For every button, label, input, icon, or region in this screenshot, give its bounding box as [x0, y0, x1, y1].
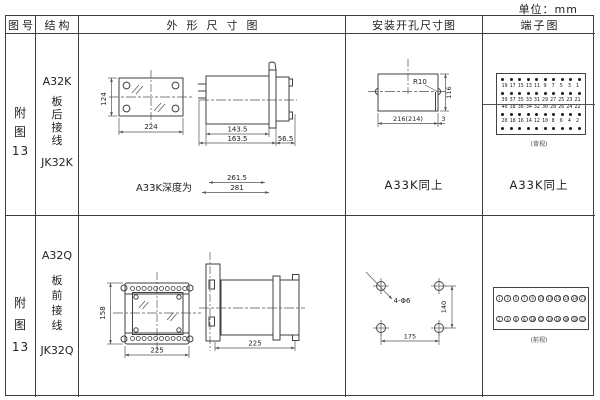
terminal-screw: 22 [579, 316, 586, 323]
row1-figure-cell: 附 图 13 [6, 34, 36, 216]
terminal-number: 13 [525, 84, 532, 89]
terminal-pin-dot [552, 92, 555, 95]
terminal-pin-dot [569, 92, 572, 95]
row2-figure-cell: 附 图 13 [6, 216, 36, 397]
terminal-pin-dot [544, 113, 547, 116]
terminal-screw: 8 [521, 316, 528, 323]
terminal-number: 1 [574, 84, 581, 89]
figure-number: 附 图 13 [6, 292, 35, 358]
dim-front-width: 225 [150, 347, 163, 355]
terminal-number: 2 [574, 119, 581, 124]
terminal-screw: 11 [538, 295, 545, 302]
terminal-pin-dot [527, 127, 530, 130]
terminal-pin-dot [510, 92, 513, 95]
terminal-screw: 18 [563, 316, 570, 323]
terminal-pin-dot [561, 92, 564, 95]
terminal-number: 20 [501, 119, 508, 124]
terminal-screw: 7 [521, 295, 528, 302]
drill-holes [377, 282, 444, 333]
terminal-pin-dot [569, 127, 572, 130]
terminal-pin-dot [510, 127, 513, 130]
terminal-number-row: 39373533312927252321 [497, 98, 585, 103]
terminal-number: 22 [574, 105, 581, 110]
terminal-circle-row: 13579111315171921 [494, 295, 588, 302]
terminal-number-row: 40383634323028262422 [497, 105, 585, 110]
terminal-screw: 12 [538, 316, 545, 323]
outline-drawing-a32q: 158 225 225 [79, 216, 346, 397]
side-center-lines [199, 252, 305, 351]
terminal-number: 37 [509, 98, 516, 103]
view-label: (背视) [483, 139, 595, 148]
terminal-number: 35 [517, 98, 524, 103]
terminal-number-row: 191715131197531 [497, 84, 585, 89]
dim-depth-2: 281 [230, 184, 243, 192]
terminal-screw: 4 [504, 316, 511, 323]
terminal-screw: 3 [504, 295, 511, 302]
terminal-number: 40 [501, 105, 508, 110]
terminal-pin-dot [501, 113, 504, 116]
row1-terminal-cell: 191715131197531 39373533312927252321 403… [483, 34, 595, 216]
terminal-number: 31 [533, 98, 540, 103]
terminal-screw: 13 [546, 295, 553, 302]
terminal-screw: 16 [554, 316, 561, 323]
header-terminal-diagram: 端子图 [483, 16, 595, 34]
terminal-number: 34 [525, 105, 532, 110]
terminal-screw: 2 [496, 316, 503, 323]
dimension-table: 图号 结构 外形尺寸图 安装开孔尺寸图 端子图 附 图 13 A32K 板 后 … [5, 15, 594, 396]
header-outline-dimensions: 外形尺寸图 [79, 16, 346, 34]
terminal-number: 4 [566, 119, 573, 124]
terminal-number: 19 [501, 84, 508, 89]
terminal-number: 21 [574, 98, 581, 103]
dim-hole-label: 4-Φ6 [394, 297, 411, 305]
terminal-number: 6 [558, 119, 565, 124]
terminal-pin-dot [518, 127, 521, 130]
terminal-pin-dot [510, 78, 513, 81]
header-structure: 结构 [36, 16, 79, 34]
terminal-screw: 9 [529, 295, 536, 302]
terminal-pin-dot [578, 113, 581, 116]
terminal-pin-dot [578, 92, 581, 95]
terminal-number: 14 [525, 119, 532, 124]
terminal-pin-dot [518, 78, 521, 81]
header-mounting-holes: 安装开孔尺寸图 [346, 16, 483, 34]
terminal-pin-dot [501, 127, 504, 130]
terminal-pin-dot [561, 127, 564, 130]
terminal-number: 26 [558, 105, 565, 110]
figure-number: 附 图 13 [6, 104, 35, 161]
terminal-screw: 5 [513, 295, 520, 302]
row2-outline-cell: 158 225 225 [79, 216, 346, 397]
terminal-same-as-note: A33K同上 [483, 177, 595, 193]
terminal-number: 39 [501, 98, 508, 103]
terminal-pin-dot [527, 78, 530, 81]
terminal-pin-dot [501, 92, 504, 95]
outline-drawing-a32k: 124 224 [79, 34, 346, 216]
terminal-pin-dot [569, 78, 572, 81]
spacing-dimensions [381, 286, 456, 345]
terminal-number: 16 [517, 119, 524, 124]
dim-side-3: 56.5 [278, 135, 294, 143]
terminal-pin-dot [535, 92, 538, 95]
terminal-number: 27 [550, 98, 557, 103]
terminal-pin-dot [561, 113, 564, 116]
terminal-pin-dot [569, 113, 572, 116]
dim-side-1: 143.5 [227, 126, 247, 134]
dim-front-height: 124 [100, 92, 108, 106]
dim-depth-1: 261.5 [227, 174, 247, 182]
terminal-number: 32 [533, 105, 540, 110]
terminal-screw: 15 [554, 295, 561, 302]
terminal-number: 15 [517, 84, 524, 89]
terminal-number: 38 [509, 105, 516, 110]
terminal-dot-row [497, 77, 585, 82]
terminal-pin-dot [578, 78, 581, 81]
mounting-drawing-a32k: R10 116 216(214) 3 [346, 34, 483, 169]
row1-mounting-cell: R10 116 216(214) 3 A33K同上 [346, 34, 483, 216]
terminal-pin-dot [527, 92, 530, 95]
terminal-number: 10 [542, 119, 549, 124]
terminal-screw: 14 [546, 316, 553, 323]
row2-terminal-cell: 13579111315171921 246810121416182022 (前视… [483, 216, 595, 397]
terminal-number: 28 [550, 105, 557, 110]
terminal-number: 30 [542, 105, 549, 110]
terminal-number: 18 [509, 119, 516, 124]
terminal-pin-dot [561, 78, 564, 81]
terminal-number-row: 2018161412108642 [497, 119, 585, 124]
terminal-pin-dot [535, 127, 538, 130]
terminal-number: 33 [525, 98, 532, 103]
dim-cutout-width: 216(214) [393, 115, 423, 123]
terminal-number: 24 [566, 105, 573, 110]
row1-structure-cell: A32K 板 后 接 线 JK32K [36, 34, 79, 216]
terminal-pin-dot [518, 92, 521, 95]
terminal-screw: 19 [571, 295, 578, 302]
terminal-dot-row [497, 126, 585, 131]
dim-side-width: 225 [248, 340, 261, 348]
dim-hole-height: 140 [440, 301, 448, 313]
depth-caption: A33K深度为 [136, 181, 192, 194]
dim-front-height: 158 [99, 306, 107, 319]
terminal-number: 3 [566, 84, 573, 89]
terminal-screw: 17 [563, 295, 570, 302]
dim-front-width: 224 [144, 123, 158, 131]
terminal-number: 23 [566, 98, 573, 103]
manual-page: 单位：mm 图号 结构 外形尺寸图 安装开孔尺寸图 端子图 附 图 13 A32… [0, 0, 600, 400]
terminal-number: 36 [517, 105, 524, 110]
terminal-number: 12 [533, 119, 540, 124]
terminal-pin-dot [501, 78, 504, 81]
terminal-pin-dot [544, 78, 547, 81]
terminal-number: 9 [542, 84, 549, 89]
terminal-number: 29 [542, 98, 549, 103]
terminal-number: 8 [550, 119, 557, 124]
dim-cutout-height: 116 [445, 86, 453, 98]
terminal-number: 11 [533, 84, 540, 89]
terminal-number: 25 [558, 98, 565, 103]
terminal-pin-dot [552, 113, 555, 116]
terminal-number: 5 [558, 84, 565, 89]
row2-mounting-cell: 4-Φ6 140 175 [346, 216, 483, 397]
terminal-screw: 6 [513, 316, 520, 323]
terminal-block-front: 13579111315171921 246810121416182022 [493, 287, 589, 330]
terminal-pin-dot [535, 78, 538, 81]
side-view [206, 264, 299, 341]
mounting-drawing-a32q: 4-Φ6 140 175 [346, 216, 483, 366]
dim-hole-width: 175 [404, 333, 416, 341]
structure-label: A32K 板 后 接 线 JK32K [36, 75, 78, 169]
terminal-number: 7 [550, 84, 557, 89]
terminal-number: 17 [509, 84, 516, 89]
terminal-pin-dot [578, 127, 581, 130]
terminal-dot-row [497, 112, 585, 117]
cutout-center-lines [368, 59, 448, 94]
row1-outline-cell: 124 224 [79, 34, 346, 216]
terminal-circle-row: 246810121416182022 [494, 316, 588, 323]
dim-side-2: 163.5 [227, 135, 247, 143]
dim-radius: R10 [413, 78, 427, 86]
terminal-dot-row [497, 91, 585, 96]
terminal-pin-dot [552, 127, 555, 130]
terminal-screw: 1 [496, 295, 503, 302]
terminal-pin-dot [510, 113, 513, 116]
terminal-pin-dot [544, 127, 547, 130]
view-label: (前视) [483, 335, 595, 344]
terminal-screw: 20 [571, 316, 578, 323]
terminal-pin-dot [552, 78, 555, 81]
header-figure-no: 图号 [6, 16, 36, 34]
terminal-divider-line [483, 104, 595, 105]
terminal-screw: 21 [579, 295, 586, 302]
terminal-pin-dot [544, 92, 547, 95]
structure-label: A32Q 板 前 接 线 JK32Q [36, 249, 78, 358]
terminal-pin-dot [518, 113, 521, 116]
dim-slot-width: 3 [441, 115, 445, 123]
terminal-pin-dot [535, 113, 538, 116]
terminal-screw: 10 [529, 316, 536, 323]
mounting-same-as-note: A33K同上 [346, 177, 482, 193]
side-view [198, 62, 293, 128]
row2-structure-cell: A32Q 板 前 接 线 JK32Q [36, 216, 79, 397]
terminal-pin-dot [527, 113, 530, 116]
